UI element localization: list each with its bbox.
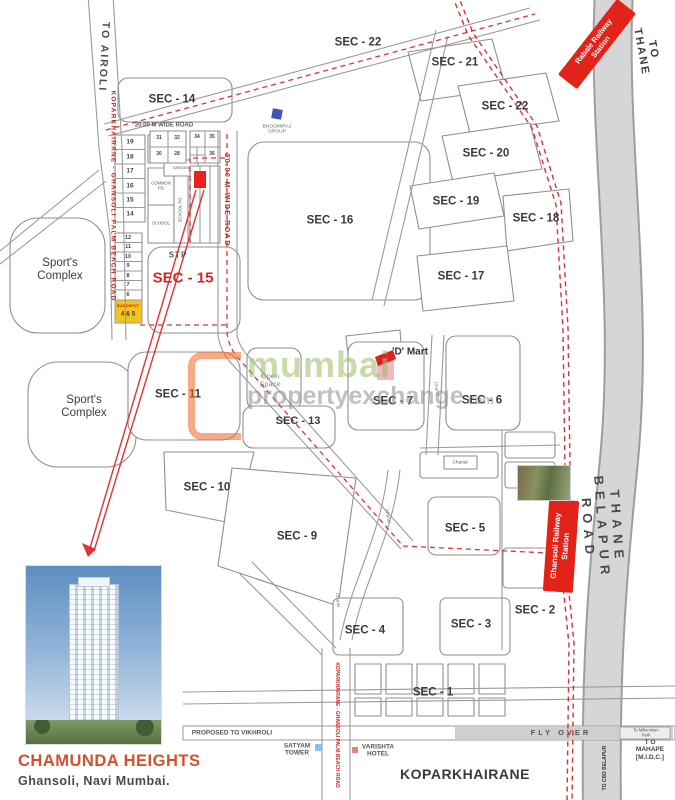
project-tower-illustration xyxy=(69,584,119,728)
bus-depot-plot xyxy=(115,300,142,323)
flyover xyxy=(183,726,675,740)
block-sec5 xyxy=(428,497,500,555)
block-school-pg xyxy=(174,176,188,243)
block-sec17 xyxy=(417,246,514,311)
block-stp xyxy=(148,247,240,333)
block-sec9 xyxy=(218,468,356,606)
ghansoli-railway-station: Ghansoli Railway Station xyxy=(543,499,579,593)
project-name: CHAMUNDA HEIGHTS xyxy=(18,752,200,771)
station-aerial-photo xyxy=(517,465,571,501)
project-photo xyxy=(25,565,162,745)
watermark-bracket-icon xyxy=(188,352,241,440)
location-map: TO AIROLIKOPARKHAIRANE - GHANSOLI PALM B… xyxy=(0,0,675,800)
satyam-tower-marker xyxy=(315,744,322,751)
block-school xyxy=(148,205,174,243)
project-photo-greenery xyxy=(26,720,161,744)
varishta-hotel-marker xyxy=(352,747,358,753)
watermark-suffix: propertyexchange xyxy=(247,382,464,410)
watermark-brand: mumbai xyxy=(247,348,494,382)
block-sports-complex-south xyxy=(28,362,136,467)
watermark: mumbai propertyexchange.com xyxy=(188,348,494,440)
watermark-tld: .com xyxy=(464,392,494,407)
bhoomiraj-marker xyxy=(271,108,283,120)
block-sec16 xyxy=(248,142,430,300)
block-sec3 xyxy=(440,598,510,655)
canal-label-box xyxy=(444,456,477,469)
block-sports-complex-north xyxy=(10,218,105,333)
millennium-park-box xyxy=(620,727,670,739)
project-location: Ghansoli, Navi Mumbai. xyxy=(18,774,170,788)
site-marker xyxy=(194,171,206,188)
thane-belapur-road xyxy=(602,0,624,800)
